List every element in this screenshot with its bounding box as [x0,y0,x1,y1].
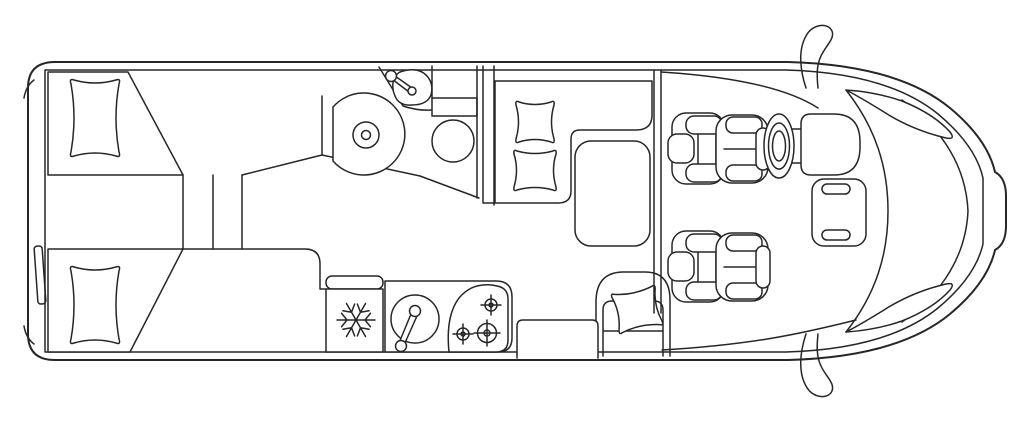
sink-faucet-knob [396,341,407,352]
bench-cushion-upper [516,101,554,142]
basin-faucet-pivot [386,71,397,82]
center-console [812,179,866,246]
toilet-cistern [432,98,477,116]
bench-cushion-lower [514,150,556,190]
bed-pillow-bottom [70,267,119,344]
bed-pillow-top [70,80,119,157]
motorhome-floorplan [0,0,1024,422]
toilet-bowl [432,120,474,162]
sink-faucet-pivot [410,306,421,317]
entry-step [517,320,598,358]
passenger-seat [668,231,770,302]
refrigerator-top [326,276,383,289]
canvas-background [0,0,1024,422]
driver-seat [668,113,770,184]
shower-tray [333,93,405,175]
basin-faucet-knob [408,87,416,95]
dinette-table [575,141,650,246]
dashboard-pod [801,114,860,175]
